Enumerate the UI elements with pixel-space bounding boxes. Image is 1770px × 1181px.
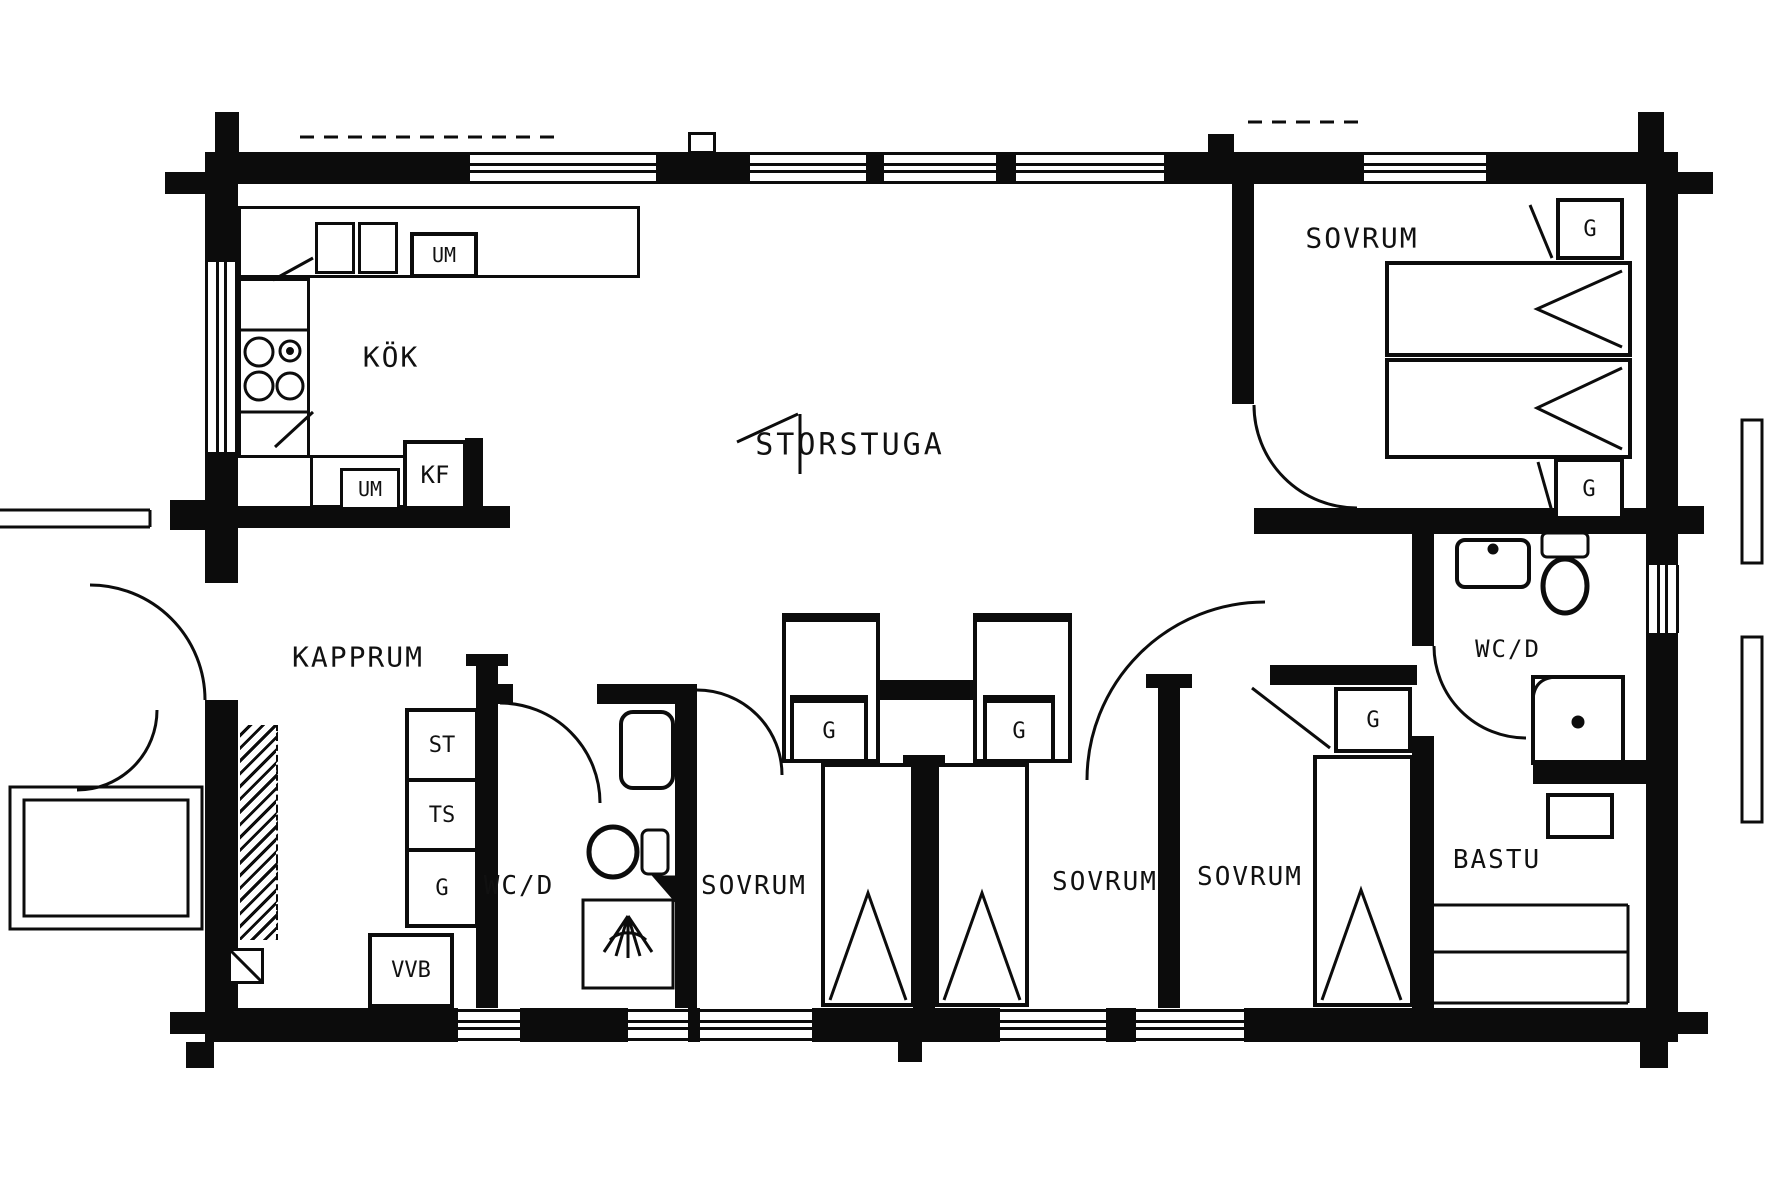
- room-label-living: STORSTUGA: [755, 428, 945, 463]
- counter-bevel-bottom: [275, 412, 313, 447]
- room-label-wc-left: WC/D: [484, 871, 555, 901]
- shower-left-spray: [604, 916, 652, 958]
- bed-1-fold: [830, 893, 906, 1000]
- sink-right-faucet: [1489, 545, 1497, 553]
- room-label-bedroom3: SOVRUM: [1197, 862, 1303, 892]
- door-arc-wc-left: [500, 703, 600, 803]
- entrance-porch-outer: [10, 787, 202, 929]
- sink-left: [621, 712, 673, 788]
- toilet-right-bowl: [1543, 559, 1587, 613]
- entrance-walkway: [0, 510, 150, 527]
- room-label-kitchen: KÖK: [363, 341, 420, 374]
- shower-right-corner-round: [1533, 677, 1558, 702]
- coat-rack-diagonal: [231, 951, 261, 981]
- closet-door-ne-top: [1530, 205, 1552, 258]
- door-arc-entrance-outer: [90, 585, 205, 700]
- sauna-heater: [1548, 795, 1612, 837]
- right-exterior-rail-2: [1742, 637, 1762, 822]
- bed-ne-1: [1387, 263, 1630, 355]
- door-arc-bedroom2: [1087, 602, 1265, 780]
- toilet-left-tank: [642, 830, 668, 874]
- counter-bevel-top: [273, 258, 313, 280]
- plan-linework: [0, 0, 1770, 1181]
- door-arc-bedroom-ne: [1254, 405, 1357, 508]
- room-label-cloakroom: KAPPRUM: [292, 641, 424, 674]
- shower-right-drain: [1573, 717, 1583, 727]
- stove-burner-3: [245, 372, 273, 400]
- bed-3-fold: [1322, 890, 1401, 1000]
- bed-ne-1-fold: [1537, 271, 1622, 347]
- room-label-bedroom2: SOVRUM: [1052, 867, 1158, 897]
- shower-left-corner: [655, 877, 675, 900]
- floor-plan: UM UM KF ST TS G VVB G G G G G: [0, 0, 1770, 1181]
- right-exterior-rail-1: [1742, 420, 1762, 563]
- room-label-bedroom1: SOVRUM: [701, 871, 807, 901]
- stove-burner-1: [245, 338, 273, 366]
- door-leaf-bedroom3: [1252, 688, 1330, 748]
- toilet-right-tank: [1542, 533, 1588, 557]
- door-arc-entrance-inner: [77, 710, 157, 790]
- bed-1: [823, 765, 913, 1005]
- bed-2: [937, 765, 1027, 1005]
- stove-burner-4: [277, 373, 303, 399]
- toilet-left-bowl: [589, 827, 637, 877]
- room-label-bedroom-ne: SOVRUM: [1305, 222, 1418, 255]
- closet-door-ne-bottom: [1538, 462, 1553, 515]
- room-label-sauna: BASTU: [1453, 845, 1541, 875]
- door-arc-bedroom1: [697, 690, 782, 775]
- bed-ne-2-fold: [1537, 368, 1622, 449]
- entrance-porch-inner: [24, 800, 188, 916]
- bed-2-fold: [944, 893, 1020, 1000]
- sauna-benches: [1434, 905, 1628, 1003]
- stove-burner-2-dot: [288, 349, 293, 354]
- room-label-wc-right: WC/D: [1475, 635, 1541, 663]
- bed-3: [1315, 757, 1412, 1005]
- bed-ne-2: [1387, 360, 1630, 457]
